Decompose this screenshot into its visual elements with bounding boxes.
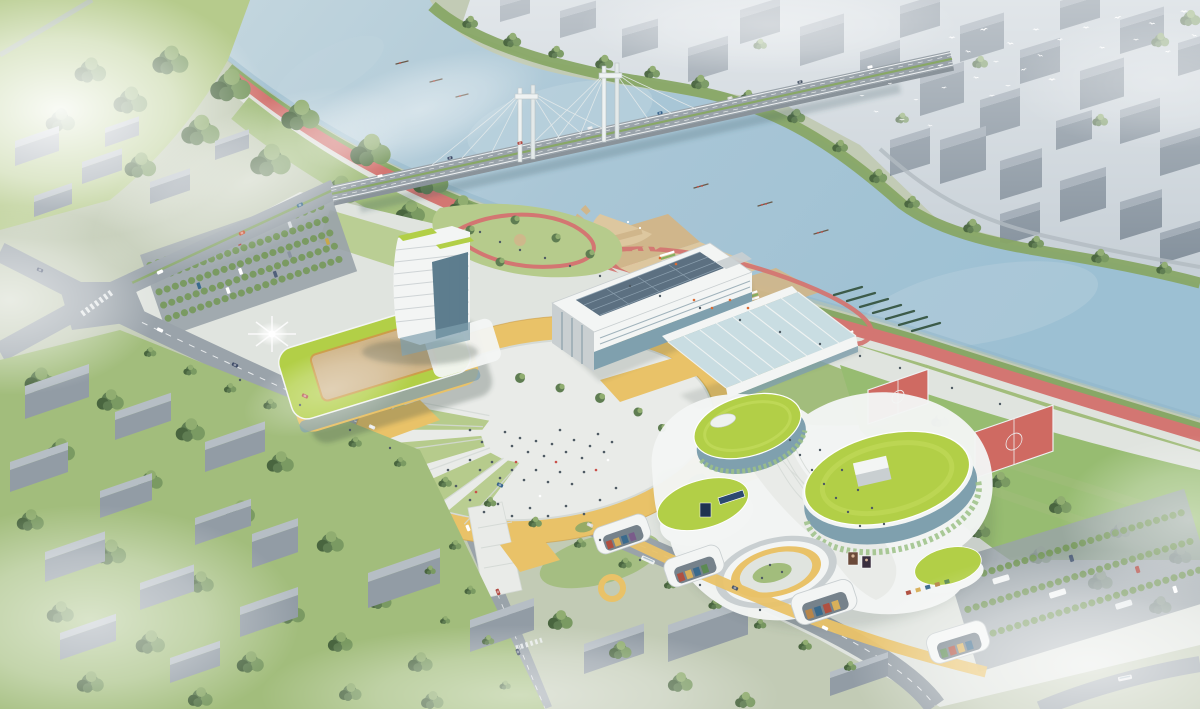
aerial-rendering: Aerial architectural rendering of a rive…: [0, 0, 1200, 709]
aerial-rendering-stage: Aerial architectural rendering of a rive…: [0, 0, 1200, 709]
